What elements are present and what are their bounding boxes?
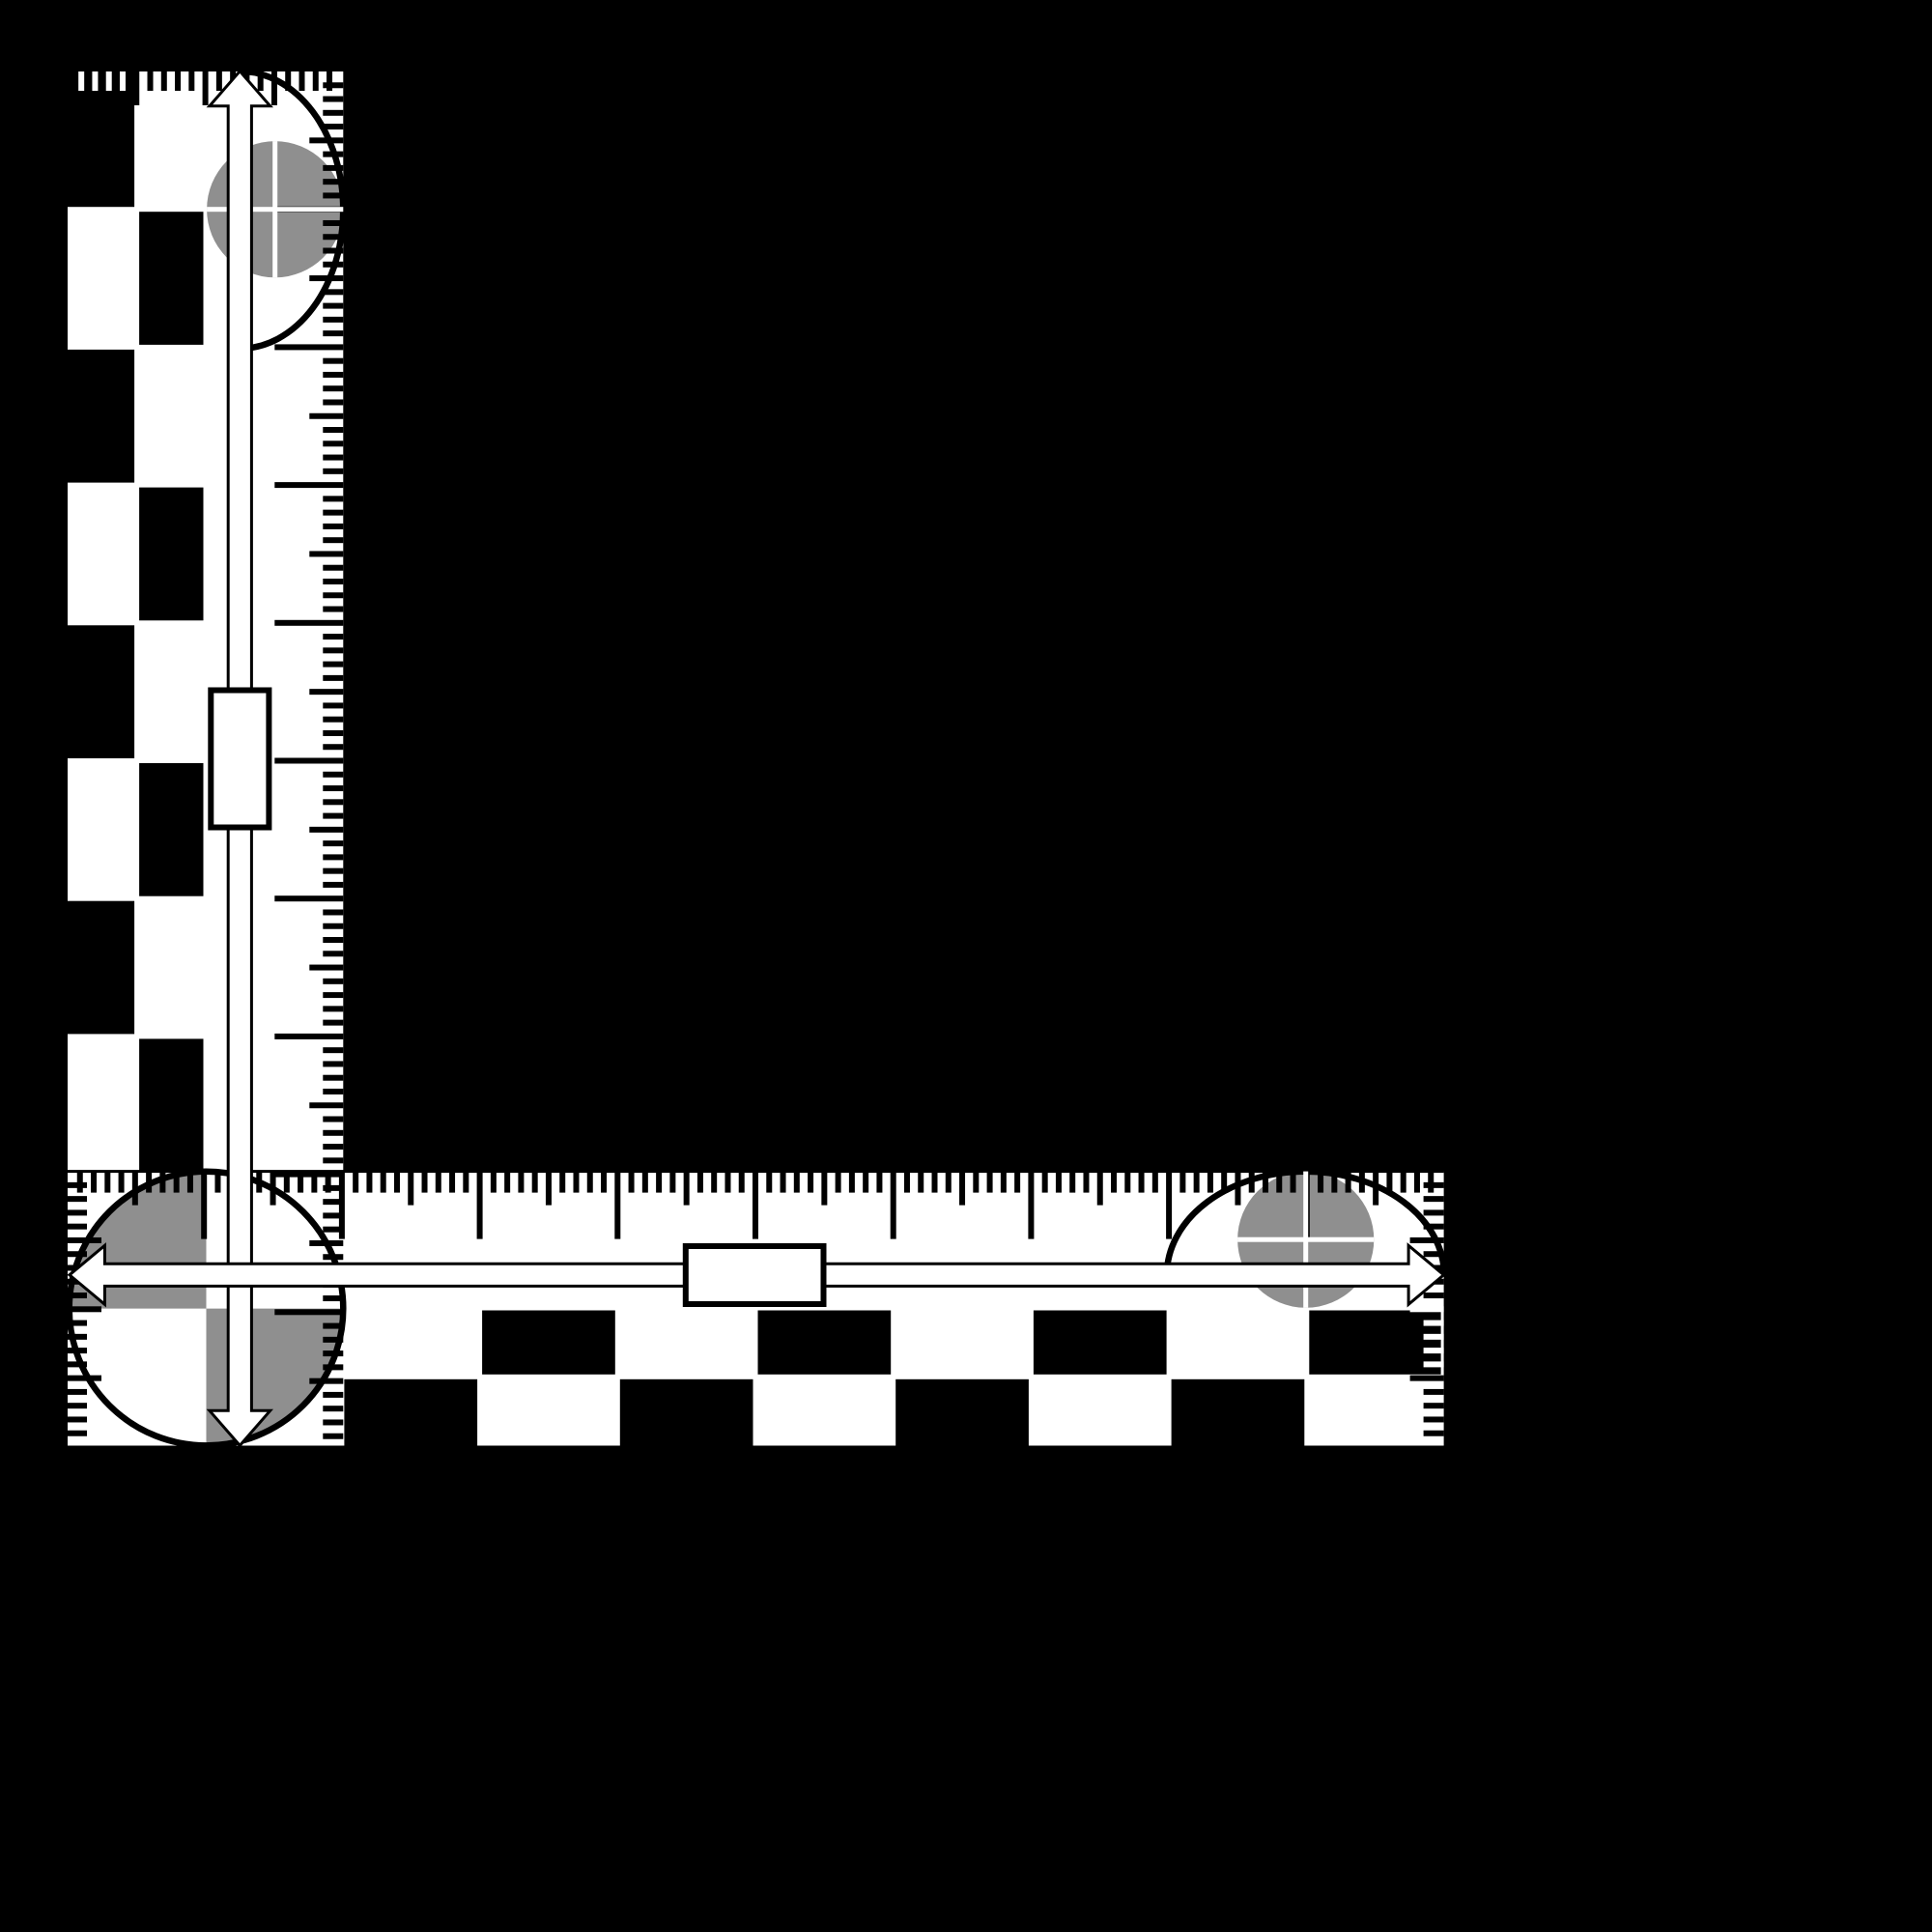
- ruler-tick: [781, 1172, 786, 1193]
- ruler-tick: [323, 1295, 343, 1301]
- ruler-tick: [323, 1020, 343, 1026]
- ruler-tick: [68, 1237, 101, 1243]
- ruler-tick: [1414, 1172, 1420, 1193]
- checker-cell: [758, 1311, 892, 1375]
- ruler-tick: [573, 1172, 579, 1193]
- ruler-tick: [323, 330, 343, 336]
- ruler-tick: [587, 1172, 593, 1193]
- ruler-tick: [1424, 1389, 1444, 1395]
- ruler-tick: [323, 1434, 343, 1439]
- ruler-tick: [1424, 1224, 1444, 1230]
- checker-cell: [139, 488, 203, 621]
- ruler-tick: [323, 772, 343, 778]
- ruler-tick: [656, 1172, 662, 1193]
- ruler-tick: [68, 1293, 87, 1298]
- ruler-tick: [753, 1172, 758, 1239]
- ruler-tick: [1069, 1172, 1075, 1193]
- ruler-tick: [323, 579, 343, 584]
- ruler-tick: [1401, 1172, 1406, 1193]
- checker-cell: [68, 901, 134, 1035]
- ruler-tick: [1056, 1172, 1062, 1193]
- ruler-tick: [1424, 1293, 1444, 1298]
- ruler-tick: [408, 1172, 413, 1206]
- ruler-tick: [1014, 1172, 1020, 1193]
- ruler-tick: [711, 1172, 717, 1193]
- ruler-tick: [1152, 1172, 1158, 1193]
- ruler-tick: [323, 1157, 343, 1163]
- checker-cell: [482, 1311, 615, 1375]
- ruler-tick: [642, 1172, 648, 1193]
- ruler-tick: [323, 662, 343, 668]
- ruler-tick: [323, 592, 343, 598]
- ruler-tick: [271, 71, 277, 105]
- ruler-tick: [309, 413, 343, 419]
- checker-cell: [139, 763, 203, 896]
- ruler-tick: [1359, 1172, 1365, 1193]
- ruler-tick: [175, 71, 181, 91]
- ruler-tick: [1410, 1306, 1444, 1312]
- ruler-tick: [1097, 1172, 1103, 1206]
- ruler-tick: [614, 1172, 620, 1239]
- ruler-tick: [323, 951, 343, 956]
- ruler-tick: [148, 71, 154, 91]
- ruler-tick: [1424, 1416, 1444, 1422]
- ruler-tick: [313, 71, 319, 91]
- ruler-tick: [106, 71, 112, 91]
- ruler-tick: [274, 1309, 343, 1315]
- ruler-tick: [326, 1172, 331, 1193]
- ruler-tick: [309, 689, 343, 695]
- ruler-tick: [904, 1172, 910, 1193]
- ruler-tick: [256, 1172, 262, 1193]
- checker-cell: [68, 625, 134, 758]
- ruler-tick: [284, 1172, 290, 1193]
- ruler-tick: [323, 979, 343, 984]
- ruler-tick: [68, 1334, 87, 1340]
- ruler-tick: [159, 1172, 165, 1193]
- ruler-tick: [323, 1144, 343, 1150]
- ruler-tick: [1424, 1196, 1444, 1202]
- ruler-tick: [821, 1172, 827, 1206]
- ruler-tick: [669, 1172, 675, 1193]
- ruler-tick: [68, 1376, 101, 1381]
- ruler-tick: [323, 262, 343, 268]
- ruler-tick: [146, 1172, 152, 1193]
- ruler-tick: [323, 97, 343, 102]
- ruler-tick: [1207, 1172, 1213, 1193]
- ruler-tick: [68, 1361, 87, 1367]
- checker-cell: [344, 1379, 477, 1446]
- ruler-tick: [1424, 1182, 1444, 1188]
- checker-cell: [1034, 1311, 1167, 1375]
- ruler-tick: [298, 71, 304, 91]
- ruler-tick: [298, 1172, 303, 1193]
- l-scale-graphic: [0, 0, 1932, 1932]
- ruler-tick: [1386, 1172, 1392, 1193]
- ruler-tick: [1424, 1361, 1444, 1367]
- ruler-tick: [132, 1172, 138, 1206]
- ruler-tick: [1166, 1172, 1172, 1239]
- ruler-tick: [323, 1323, 343, 1329]
- ruler-tick: [477, 1172, 483, 1239]
- ruler-tick: [1083, 1172, 1089, 1193]
- ruler-tick: [323, 124, 343, 129]
- ruler-tick: [68, 1251, 87, 1257]
- checker-cell: [1309, 1311, 1440, 1375]
- ruler-tick: [323, 179, 343, 185]
- ruler-tick: [323, 399, 343, 405]
- ruler-tick: [1249, 1172, 1255, 1193]
- ruler-tick: [918, 1172, 923, 1193]
- ruler-tick: [203, 71, 209, 105]
- ruler-tick: [323, 1350, 343, 1356]
- ruler-tick: [849, 1172, 855, 1193]
- ruler-tick: [323, 882, 343, 888]
- ruler-tick: [323, 537, 343, 543]
- ruler-tick: [323, 785, 343, 791]
- ruler-tick: [327, 71, 332, 91]
- ruler-tick: [323, 565, 343, 571]
- ruler-tick: [449, 1172, 455, 1193]
- ruler-tick: [1424, 1403, 1444, 1408]
- checker-cell: [895, 1379, 1029, 1446]
- ruler-tick: [1428, 1172, 1434, 1193]
- ruler-tick: [323, 1337, 343, 1343]
- ruler-tick: [491, 1172, 497, 1193]
- ruler-tick: [394, 1172, 400, 1193]
- horizontal-arrow-box: [686, 1246, 824, 1304]
- ruler-tick: [323, 289, 343, 295]
- ruler-tick: [836, 1172, 841, 1193]
- ruler-tick: [323, 868, 343, 874]
- checker-cell: [68, 71, 134, 207]
- ruler-tick: [1424, 1334, 1444, 1340]
- scale-arms: [68, 71, 1444, 1446]
- ruler-tick: [274, 482, 343, 488]
- ruler-tick: [932, 1172, 938, 1193]
- ruler-tick: [68, 1321, 87, 1326]
- ruler-tick: [323, 385, 343, 391]
- ruler-tick: [323, 1406, 343, 1411]
- ruler-tick: [323, 1364, 343, 1370]
- ruler-tick: [739, 1172, 745, 1193]
- vertical-arrow-box: [211, 691, 269, 828]
- ruler-tick: [353, 1172, 358, 1193]
- ruler-tick: [68, 1416, 87, 1422]
- ruler-tick: [323, 1130, 343, 1136]
- ruler-tick: [323, 813, 343, 819]
- ruler-tick: [1276, 1172, 1282, 1193]
- ruler-tick: [258, 71, 264, 91]
- ruler-tick: [323, 730, 343, 736]
- ruler-tick: [188, 71, 194, 91]
- ruler-tick: [1139, 1172, 1145, 1193]
- ruler-tick: [323, 524, 343, 529]
- ruler-tick: [1194, 1172, 1200, 1193]
- ruler-tick: [323, 1075, 343, 1081]
- ruler-tick: [274, 758, 343, 764]
- ruler-tick: [323, 799, 343, 805]
- ruler-tick: [309, 1102, 343, 1108]
- ruler-tick: [1263, 1172, 1268, 1193]
- ruler-tick: [629, 1172, 635, 1193]
- ruler-tick: [1424, 1348, 1444, 1353]
- ruler-tick: [68, 1306, 101, 1312]
- ruler-tick: [323, 937, 343, 943]
- ruler-tick: [323, 647, 343, 653]
- ruler-tick: [311, 1172, 317, 1193]
- ruler-tick: [323, 510, 343, 516]
- checker-cell: [139, 212, 203, 345]
- ruler-tick: [323, 440, 343, 446]
- ruler-tick: [274, 344, 343, 350]
- ruler-tick: [1042, 1172, 1048, 1193]
- ruler-tick: [323, 1117, 343, 1122]
- ruler-tick: [133, 71, 139, 105]
- ruler-tick: [323, 192, 343, 198]
- ruler-tick: [323, 220, 343, 226]
- ruler-tick: [309, 965, 343, 971]
- ruler-tick: [274, 620, 343, 626]
- ruler-tick: [959, 1172, 965, 1206]
- ruler-tick: [309, 137, 343, 143]
- ruler-tick: [309, 551, 343, 556]
- ruler-tick: [323, 1254, 343, 1260]
- ruler-tick: [68, 1403, 87, 1408]
- ruler-tick: [323, 909, 343, 915]
- ruler-tick: [309, 1378, 343, 1384]
- ruler-tick: [546, 1172, 552, 1206]
- ruler-tick: [1028, 1172, 1034, 1239]
- ruler-tick: [323, 854, 343, 860]
- ruler-tick: [68, 1348, 87, 1353]
- ruler-tick: [68, 1389, 87, 1395]
- ruler-tick: [323, 607, 343, 612]
- fiducial-crosshairs: [207, 141, 1374, 1308]
- ruler-tick: [92, 71, 98, 91]
- ruler-tick: [1410, 1237, 1444, 1243]
- ruler-tick: [323, 455, 343, 461]
- ruler-tick: [68, 1196, 87, 1202]
- ruler-tick: [78, 71, 84, 91]
- ruler-tick: [1291, 1172, 1296, 1193]
- ruler-tick: [1001, 1172, 1007, 1193]
- ruler-tick: [532, 1172, 538, 1193]
- ruler-tick: [323, 992, 343, 998]
- ruler-tick: [323, 702, 343, 708]
- ruler-tick: [309, 827, 343, 833]
- ruler-tick: [339, 1172, 345, 1239]
- ruler-tick: [119, 1172, 125, 1193]
- ruler-tick: [684, 1172, 690, 1206]
- ruler-tick: [1424, 1321, 1444, 1326]
- ruler-tick: [187, 1172, 193, 1193]
- ruler-tick: [323, 82, 343, 88]
- ruler-tick: [1221, 1172, 1227, 1193]
- ruler-tick: [463, 1172, 469, 1193]
- ruler-tick: [559, 1172, 565, 1193]
- ruler-tick: [323, 496, 343, 501]
- checker-cell: [68, 350, 134, 483]
- ruler-tick: [323, 317, 343, 323]
- ruler-tick: [68, 1431, 87, 1436]
- ruler-tick: [323, 1419, 343, 1425]
- ruler-tick: [77, 1172, 83, 1193]
- ruler-tick: [766, 1172, 772, 1193]
- ruler-tick: [323, 248, 343, 254]
- ruler-tick: [323, 303, 343, 309]
- ruler-tick: [323, 1047, 343, 1053]
- ruler-tick: [1424, 1251, 1444, 1257]
- ruler-tick: [422, 1172, 428, 1193]
- ruler-tick: [1318, 1172, 1323, 1193]
- ruler-tick: [987, 1172, 993, 1193]
- crosshair-line: [272, 141, 277, 277]
- ruler-tick: [973, 1172, 979, 1193]
- ruler-tick: [68, 1182, 87, 1188]
- ruler-tick: [323, 840, 343, 846]
- ruler-tick: [309, 275, 343, 281]
- ruler-tick: [1424, 1431, 1444, 1436]
- ruler-tick: [381, 1172, 386, 1193]
- checker-cell: [139, 1038, 203, 1171]
- ruler-tick: [120, 71, 126, 91]
- ruler-tick: [323, 717, 343, 723]
- ruler-tick: [323, 372, 343, 378]
- ruler-tick: [323, 675, 343, 681]
- ruler-tick: [863, 1172, 868, 1193]
- ruler-tick: [323, 923, 343, 929]
- ruler-tick: [794, 1172, 800, 1193]
- ruler-tick: [91, 1172, 97, 1193]
- ruler-tick: [323, 165, 343, 171]
- ruler-tick: [285, 71, 291, 91]
- ruler-tick: [601, 1172, 607, 1193]
- ruler-tick: [1424, 1209, 1444, 1215]
- ruler-tick: [518, 1172, 524, 1193]
- ruler-tick: [808, 1172, 813, 1193]
- ruler-tick: [323, 358, 343, 364]
- ruler-tick: [876, 1172, 882, 1193]
- ruler-tick: [270, 1172, 276, 1206]
- ruler-tick: [323, 152, 343, 157]
- ruler-tick: [1331, 1172, 1337, 1193]
- ruler-tick: [323, 110, 343, 116]
- ruler-tick: [323, 1006, 343, 1011]
- ruler-tick: [68, 1224, 87, 1230]
- screenshot-root: [0, 0, 1932, 1932]
- ruler-tick: [697, 1172, 703, 1193]
- ruler-tick: [214, 1172, 220, 1193]
- ruler-tick: [323, 1061, 343, 1066]
- ruler-tick: [274, 1034, 343, 1039]
- ruler-tick: [68, 1209, 87, 1215]
- ruler-tick: [201, 1172, 207, 1239]
- ruler-tick: [323, 469, 343, 474]
- ruler-tick: [1235, 1172, 1240, 1206]
- ruler-tick: [323, 427, 343, 433]
- ruler-tick: [323, 634, 343, 639]
- checker-cell: [620, 1379, 753, 1446]
- ruler-tick: [724, 1172, 730, 1193]
- ruler-tick: [1124, 1172, 1130, 1193]
- ruler-tick: [891, 1172, 896, 1239]
- ruler-tick: [1373, 1172, 1378, 1206]
- ruler-tick: [216, 71, 222, 91]
- ruler-tick: [366, 1172, 372, 1193]
- ruler-tick: [436, 1172, 441, 1193]
- ruler-tick: [1346, 1172, 1351, 1193]
- ruler-tick: [946, 1172, 952, 1193]
- checker-cell: [1172, 1379, 1305, 1446]
- ruler-tick: [323, 1089, 343, 1094]
- ruler-tick: [323, 744, 343, 750]
- ruler-tick: [309, 1240, 343, 1246]
- ruler-tick: [274, 895, 343, 901]
- ruler-tick: [1179, 1172, 1185, 1193]
- ruler-tick: [1111, 1172, 1117, 1193]
- ruler-tick: [1410, 1376, 1444, 1381]
- ruler-tick: [323, 1392, 343, 1398]
- ruler-tick: [504, 1172, 510, 1193]
- ruler-tick: [161, 71, 167, 91]
- ruler-tick: [104, 1172, 110, 1193]
- ruler-tick: [174, 1172, 180, 1193]
- ruler-tick: [323, 234, 343, 240]
